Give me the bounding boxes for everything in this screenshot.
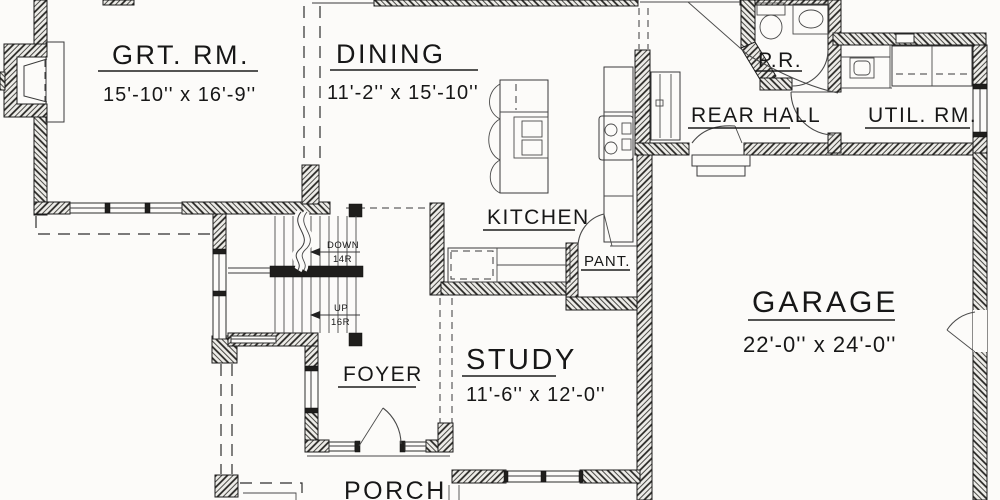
kitchen-label: KITCHEN	[487, 206, 590, 229]
study-dims: 11'-6'' x 12'-0''	[466, 384, 606, 406]
porch-label: PORCH	[344, 477, 447, 500]
stair-newel-post	[349, 333, 362, 346]
powder-room-label: P.R.	[758, 49, 802, 72]
great-room-dims: 15'-10'' x 16'-9''	[103, 84, 256, 106]
dining-dims: 11'-2'' x 15'-10''	[327, 82, 479, 104]
foyer-label: FOYER	[343, 363, 423, 386]
rear-hall-label: REAR HALL	[691, 104, 821, 127]
stair-down-label: DOWN	[327, 240, 359, 251]
stair-landing-wall	[270, 266, 363, 277]
stair-newel-post	[349, 204, 362, 217]
floor-plan-svg: GRT. RM. 15'-10'' x 16'-9'' DINING 11'-2…	[0, 0, 1000, 500]
garage-label: GARAGE	[752, 286, 898, 319]
floor-plan-drawing: GRT. RM. 15'-10'' x 16'-9'' DINING 11'-2…	[0, 0, 1000, 500]
stair-up-risers: 16R	[331, 317, 350, 328]
porch-column-south	[215, 475, 238, 497]
study-label: STUDY	[466, 344, 577, 376]
pantry-label: PANT.	[584, 253, 630, 270]
dining-label: DINING	[336, 39, 446, 69]
stair-down-risers: 14R	[333, 254, 352, 265]
utility-room-label: UTIL. RM.	[868, 104, 977, 127]
stair-up-label: UP	[334, 303, 348, 314]
great-room-label: GRT. RM.	[112, 40, 250, 70]
column-great-room-dining	[302, 165, 319, 204]
garage-dims: 22'-0'' x 24'-0''	[743, 332, 897, 357]
